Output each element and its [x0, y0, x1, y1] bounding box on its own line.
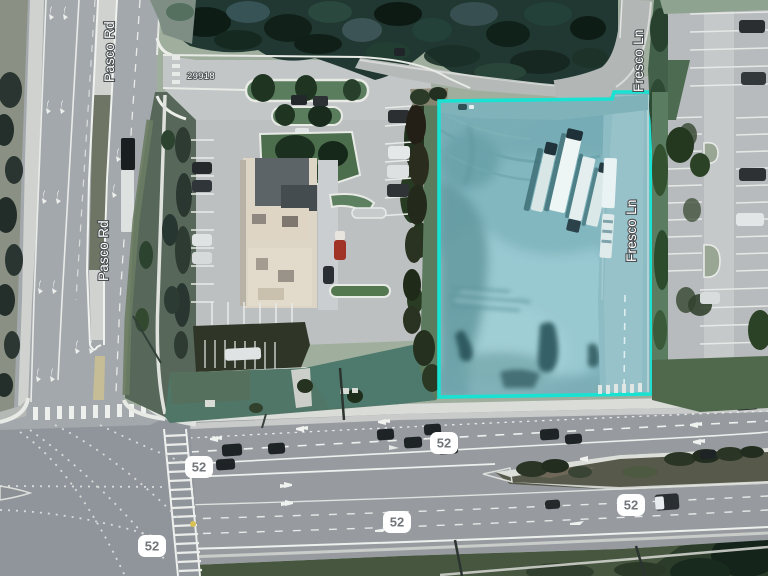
svg-text:Fresco Ln: Fresco Ln — [624, 199, 639, 262]
svg-text:52: 52 — [624, 498, 638, 513]
svg-text:29918: 29918 — [187, 71, 215, 82]
svg-text:Fresco Ln: Fresco Ln — [631, 29, 646, 92]
svg-text:Pasco Rd: Pasco Rd — [102, 21, 117, 82]
svg-text:52: 52 — [192, 460, 206, 475]
svg-text:Pasco Rd: Pasco Rd — [96, 220, 111, 281]
svg-text:52: 52 — [390, 515, 404, 530]
svg-text:52: 52 — [437, 436, 451, 451]
svg-text:52: 52 — [145, 539, 159, 554]
